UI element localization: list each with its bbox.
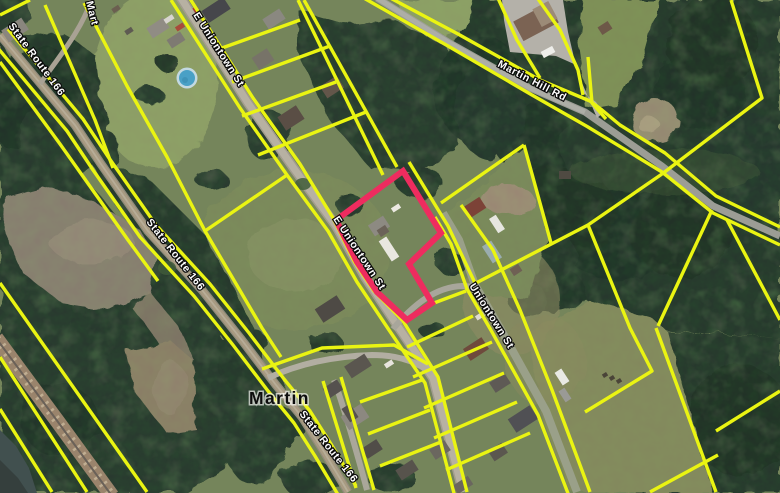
svg-text:Martin: Martin bbox=[249, 388, 310, 408]
